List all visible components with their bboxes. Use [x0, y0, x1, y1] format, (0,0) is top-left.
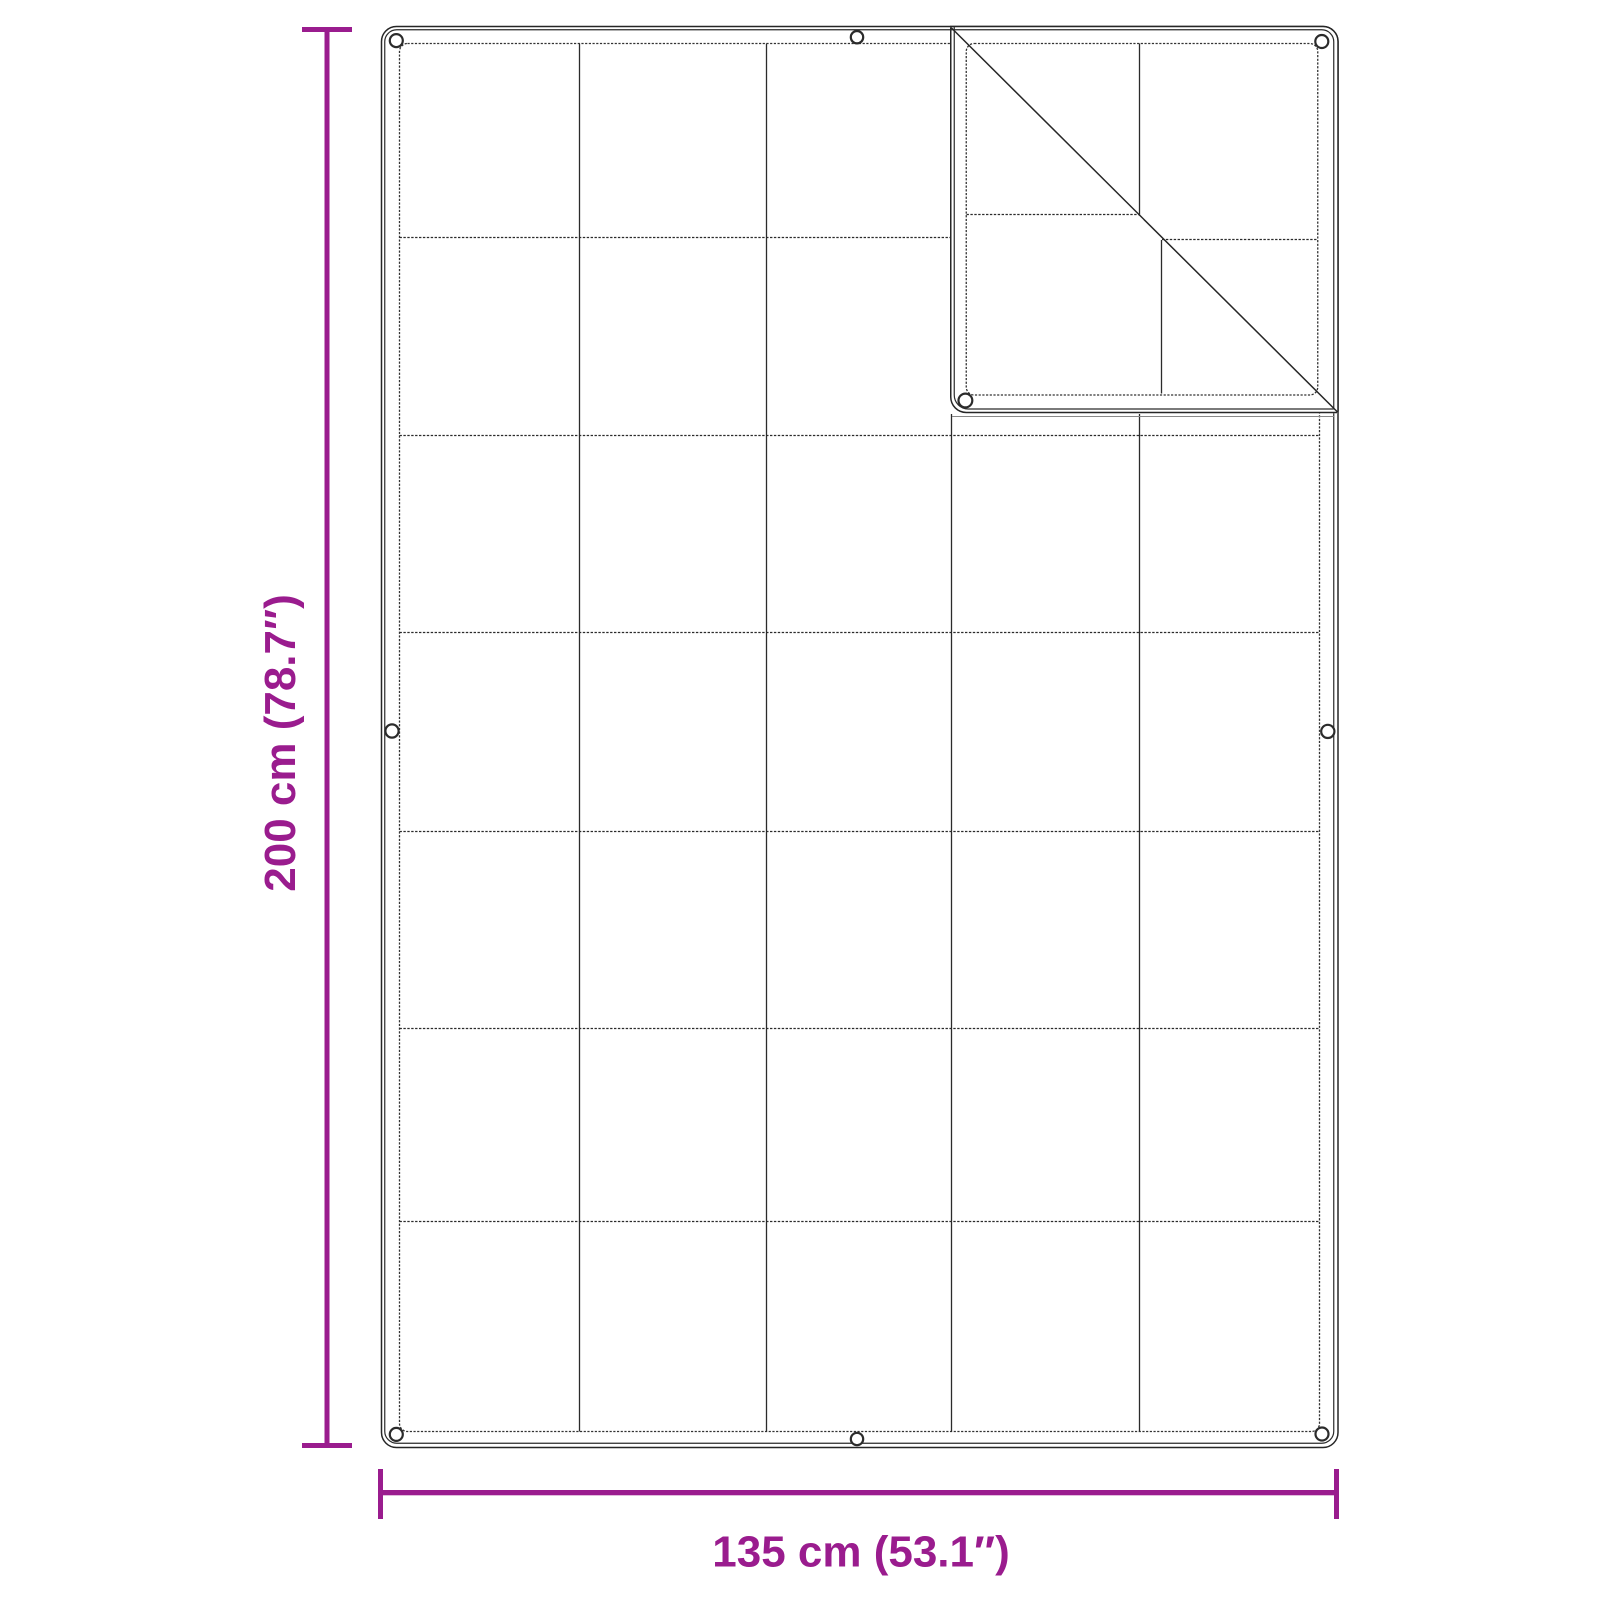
svg-text:135 cm (53.1″): 135 cm (53.1″) — [712, 1528, 1009, 1577]
svg-text:200 cm (78.7″): 200 cm (78.7″) — [256, 594, 305, 891]
